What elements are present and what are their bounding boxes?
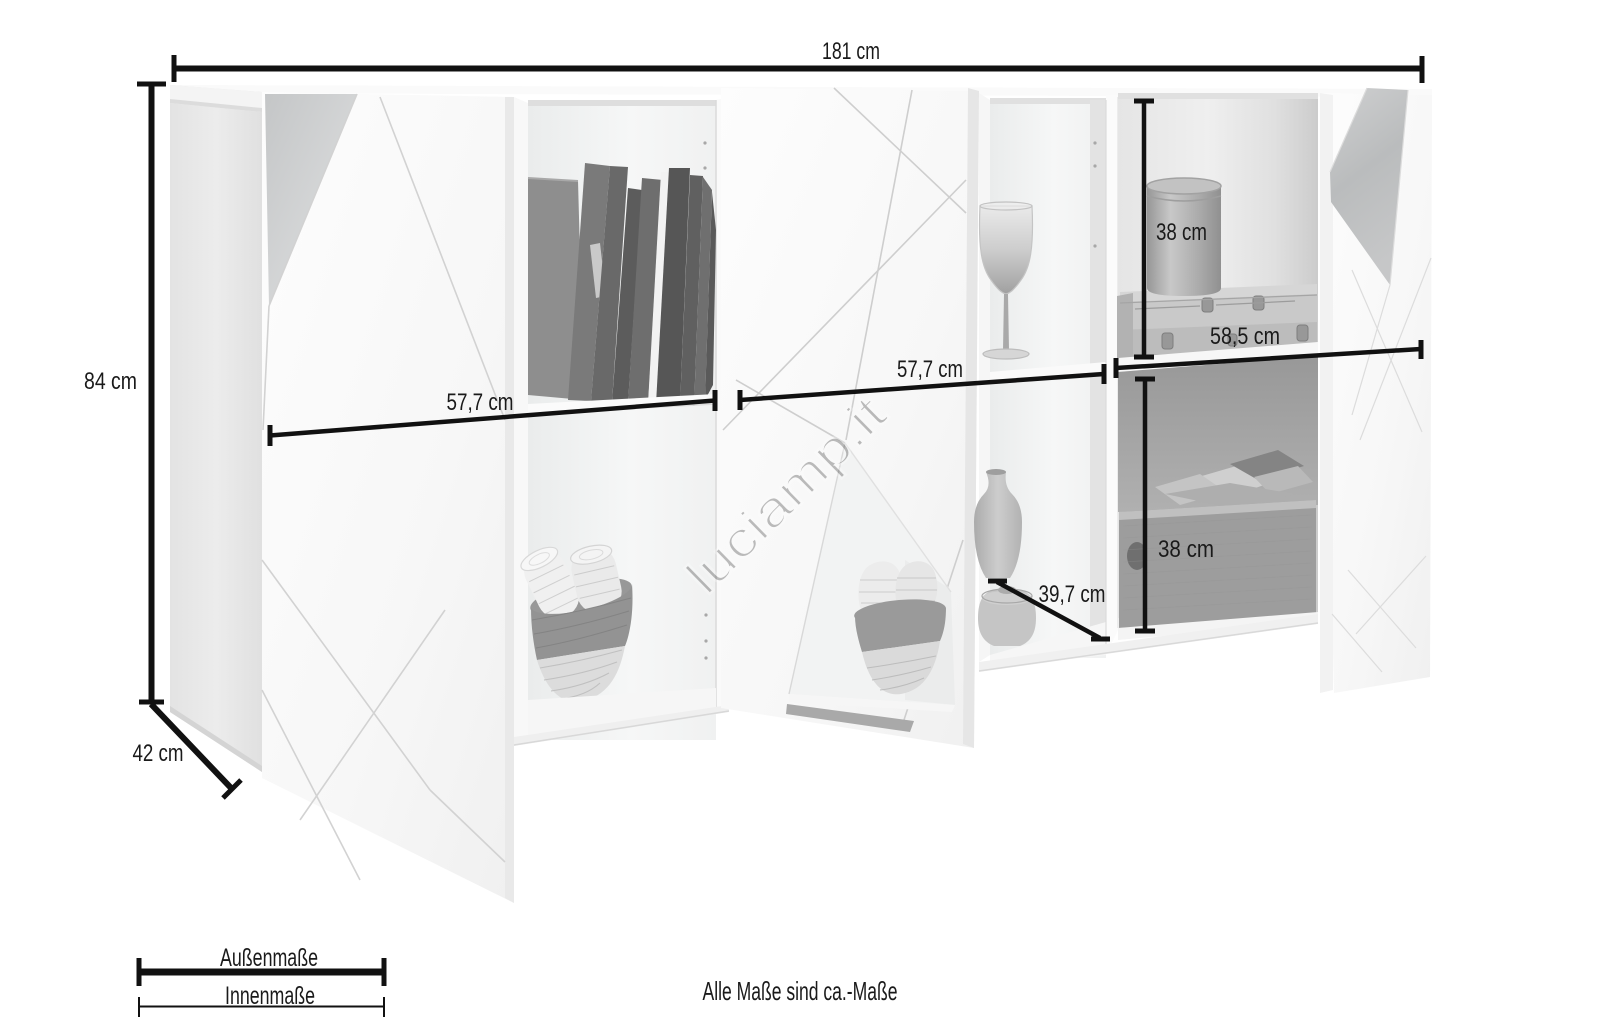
svg-text:38 cm: 38 cm xyxy=(1156,219,1207,246)
svg-text:Innenmaße: Innenmaße xyxy=(225,982,315,1010)
svg-text:181 cm: 181 cm xyxy=(822,38,880,65)
svg-text:57,7 cm: 57,7 cm xyxy=(447,389,514,416)
svg-text:Alle Maße sind ca.-Maße: Alle Maße sind ca.-Maße xyxy=(703,976,898,1006)
svg-text:39,7 cm: 39,7 cm xyxy=(1039,581,1106,608)
svg-text:84 cm: 84 cm xyxy=(84,368,137,395)
svg-text:38 cm: 38 cm xyxy=(1158,536,1214,563)
svg-text:58,5 cm: 58,5 cm xyxy=(1210,323,1280,350)
svg-text:Außenmaße: Außenmaße xyxy=(220,944,318,972)
svg-text:42 cm: 42 cm xyxy=(133,740,184,767)
svg-text:57,7 cm: 57,7 cm xyxy=(897,356,963,383)
